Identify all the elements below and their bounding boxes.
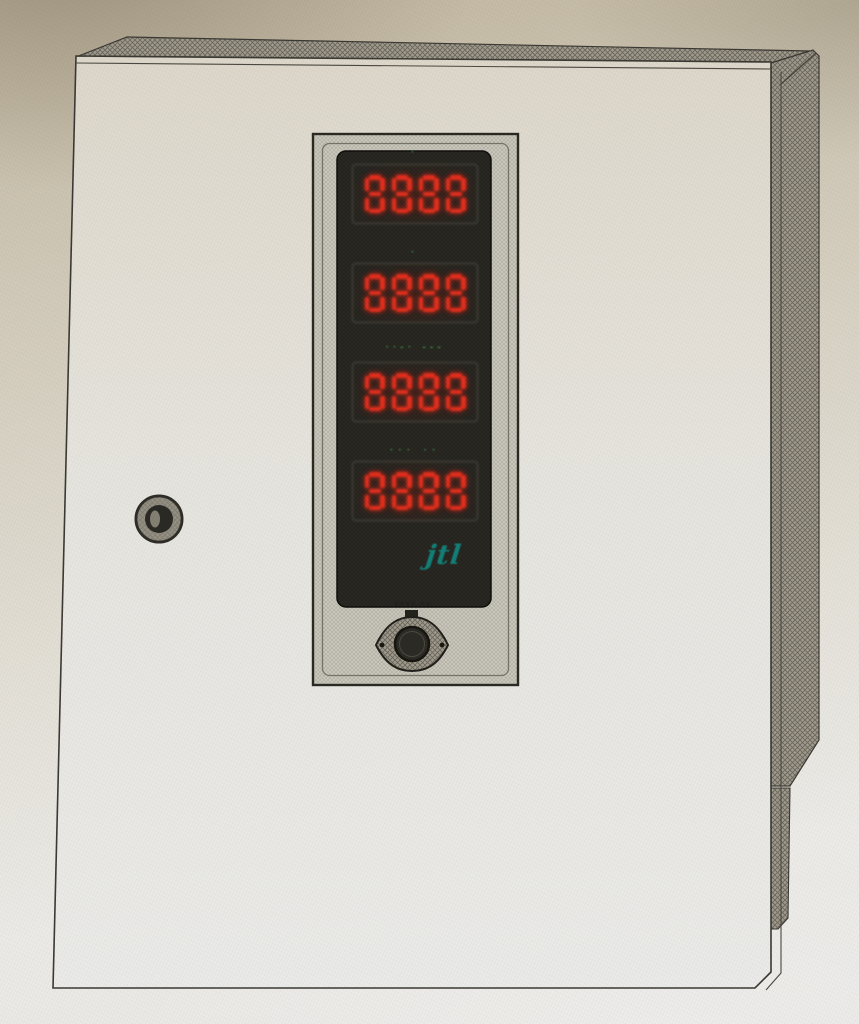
segment-e	[419, 495, 424, 508]
segment-e	[365, 495, 370, 508]
segment-c	[380, 495, 385, 508]
segment-g	[396, 192, 408, 197]
seven-segment-digit	[392, 175, 412, 213]
led-display-1	[352, 164, 478, 224]
segment-b	[434, 376, 439, 389]
segment-d	[396, 506, 408, 511]
seven-segment-digit	[365, 373, 385, 411]
segment-b	[434, 277, 439, 290]
segment-f	[392, 376, 397, 389]
segment-f	[446, 475, 451, 488]
segment-b	[407, 178, 412, 191]
segment-e	[365, 396, 370, 409]
segment-b	[461, 277, 466, 290]
segment-a	[450, 373, 462, 378]
segment-b	[407, 277, 412, 290]
segment-e	[392, 297, 397, 310]
seven-segment-digit	[365, 274, 385, 312]
segment-d	[369, 407, 381, 412]
brand-logo: jtl	[424, 540, 463, 571]
segment-a	[423, 472, 435, 477]
segment-d	[369, 308, 381, 313]
segment-d	[369, 209, 381, 214]
seven-segment-digit	[392, 373, 412, 411]
seven-segment-digit	[419, 175, 439, 213]
segment-g	[396, 390, 408, 395]
segment-f	[419, 376, 424, 389]
led-display-3	[352, 362, 478, 422]
knob-screw-right	[440, 643, 445, 648]
segment-b	[380, 178, 385, 191]
segment-c	[434, 297, 439, 310]
knob-screw-left	[380, 643, 385, 648]
segment-d	[396, 209, 408, 214]
segment-a	[369, 274, 381, 279]
cabinet-right-side	[771, 50, 819, 786]
segment-e	[419, 396, 424, 409]
segment-b	[380, 475, 385, 488]
segment-a	[369, 373, 381, 378]
segment-f	[446, 376, 451, 389]
segment-a	[369, 175, 381, 180]
segment-g	[396, 291, 408, 296]
segment-b	[380, 376, 385, 389]
display-2-indicator-marks: ·	[352, 248, 476, 258]
segment-a	[369, 472, 381, 477]
segment-g	[423, 390, 435, 395]
segment-a	[423, 373, 435, 378]
seven-segment-digit	[419, 472, 439, 510]
segment-a	[450, 274, 462, 279]
segment-c	[380, 297, 385, 310]
seven-segment-digit	[392, 274, 412, 312]
segment-c	[380, 198, 385, 211]
segment-a	[450, 472, 462, 477]
segment-c	[434, 495, 439, 508]
segment-b	[407, 475, 412, 488]
segment-c	[461, 297, 466, 310]
segment-d	[450, 506, 462, 511]
segment-f	[365, 277, 370, 290]
segment-f	[419, 475, 424, 488]
photo-control-cabinet: · · ··-· --- ··· ·· jtl ▪▪▪▪ ▪▪	[0, 0, 859, 1024]
segment-e	[446, 198, 451, 211]
segment-f	[446, 178, 451, 191]
segment-d	[396, 308, 408, 313]
segment-c	[407, 396, 412, 409]
segment-f	[419, 277, 424, 290]
segment-e	[446, 396, 451, 409]
segment-f	[365, 178, 370, 191]
segment-b	[434, 178, 439, 191]
segment-f	[392, 475, 397, 488]
segment-b	[461, 178, 466, 191]
segment-b	[407, 376, 412, 389]
segment-g	[423, 192, 435, 197]
segment-g	[369, 390, 381, 395]
segment-a	[396, 175, 408, 180]
segment-g	[423, 291, 435, 296]
segment-d	[450, 407, 462, 412]
segment-e	[446, 495, 451, 508]
segment-g	[369, 489, 381, 494]
segment-b	[461, 475, 466, 488]
segment-f	[419, 178, 424, 191]
segment-f	[446, 277, 451, 290]
seven-segment-digit	[446, 472, 466, 510]
segment-d	[450, 308, 462, 313]
segment-a	[396, 274, 408, 279]
segment-g	[450, 489, 462, 494]
segment-d	[423, 506, 435, 511]
seven-segment-digit	[365, 472, 385, 510]
segment-e	[419, 297, 424, 310]
segment-e	[365, 198, 370, 211]
segment-d	[450, 209, 462, 214]
segment-a	[423, 274, 435, 279]
segment-g	[396, 489, 408, 494]
segment-a	[450, 175, 462, 180]
segment-e	[365, 297, 370, 310]
seven-segment-digit	[446, 175, 466, 213]
display-3-indicator-marks: ··-· ---	[352, 343, 476, 353]
segment-a	[396, 472, 408, 477]
segment-f	[365, 475, 370, 488]
segment-c	[434, 396, 439, 409]
segment-c	[407, 495, 412, 508]
segment-d	[369, 506, 381, 511]
door-lock	[136, 496, 182, 542]
segment-f	[365, 376, 370, 389]
segment-g	[369, 291, 381, 296]
segment-e	[446, 297, 451, 310]
segment-a	[423, 175, 435, 180]
segment-a	[396, 373, 408, 378]
segment-f	[392, 277, 397, 290]
segment-g	[450, 192, 462, 197]
segment-c	[407, 297, 412, 310]
segment-c	[380, 396, 385, 409]
segment-c	[434, 198, 439, 211]
display-1-indicator-marks: ·	[352, 148, 476, 158]
segment-e	[392, 198, 397, 211]
segment-e	[392, 495, 397, 508]
segment-d	[423, 407, 435, 412]
led-display-2	[352, 263, 478, 323]
seven-segment-digit	[419, 373, 439, 411]
segment-d	[423, 308, 435, 313]
segment-e	[392, 396, 397, 409]
segment-c	[407, 198, 412, 211]
segment-g	[423, 489, 435, 494]
segment-g	[450, 390, 462, 395]
seven-segment-digit	[419, 274, 439, 312]
knob-caption: ▪▪▪▪ ▪▪	[375, 600, 451, 607]
seven-segment-digit	[446, 274, 466, 312]
segment-d	[423, 209, 435, 214]
segment-c	[461, 396, 466, 409]
seven-segment-digit	[365, 175, 385, 213]
segment-c	[461, 495, 466, 508]
knob-dial	[395, 627, 429, 661]
segment-d	[396, 407, 408, 412]
seven-segment-digit	[446, 373, 466, 411]
segment-g	[369, 192, 381, 197]
led-display-4	[352, 461, 478, 521]
segment-b	[434, 475, 439, 488]
segment-g	[450, 291, 462, 296]
segment-c	[461, 198, 466, 211]
segment-e	[419, 198, 424, 211]
segment-f	[392, 178, 397, 191]
display-4-indicator-marks: ··· ··	[352, 446, 476, 456]
segment-b	[380, 277, 385, 290]
segment-b	[461, 376, 466, 389]
seven-segment-digit	[392, 472, 412, 510]
